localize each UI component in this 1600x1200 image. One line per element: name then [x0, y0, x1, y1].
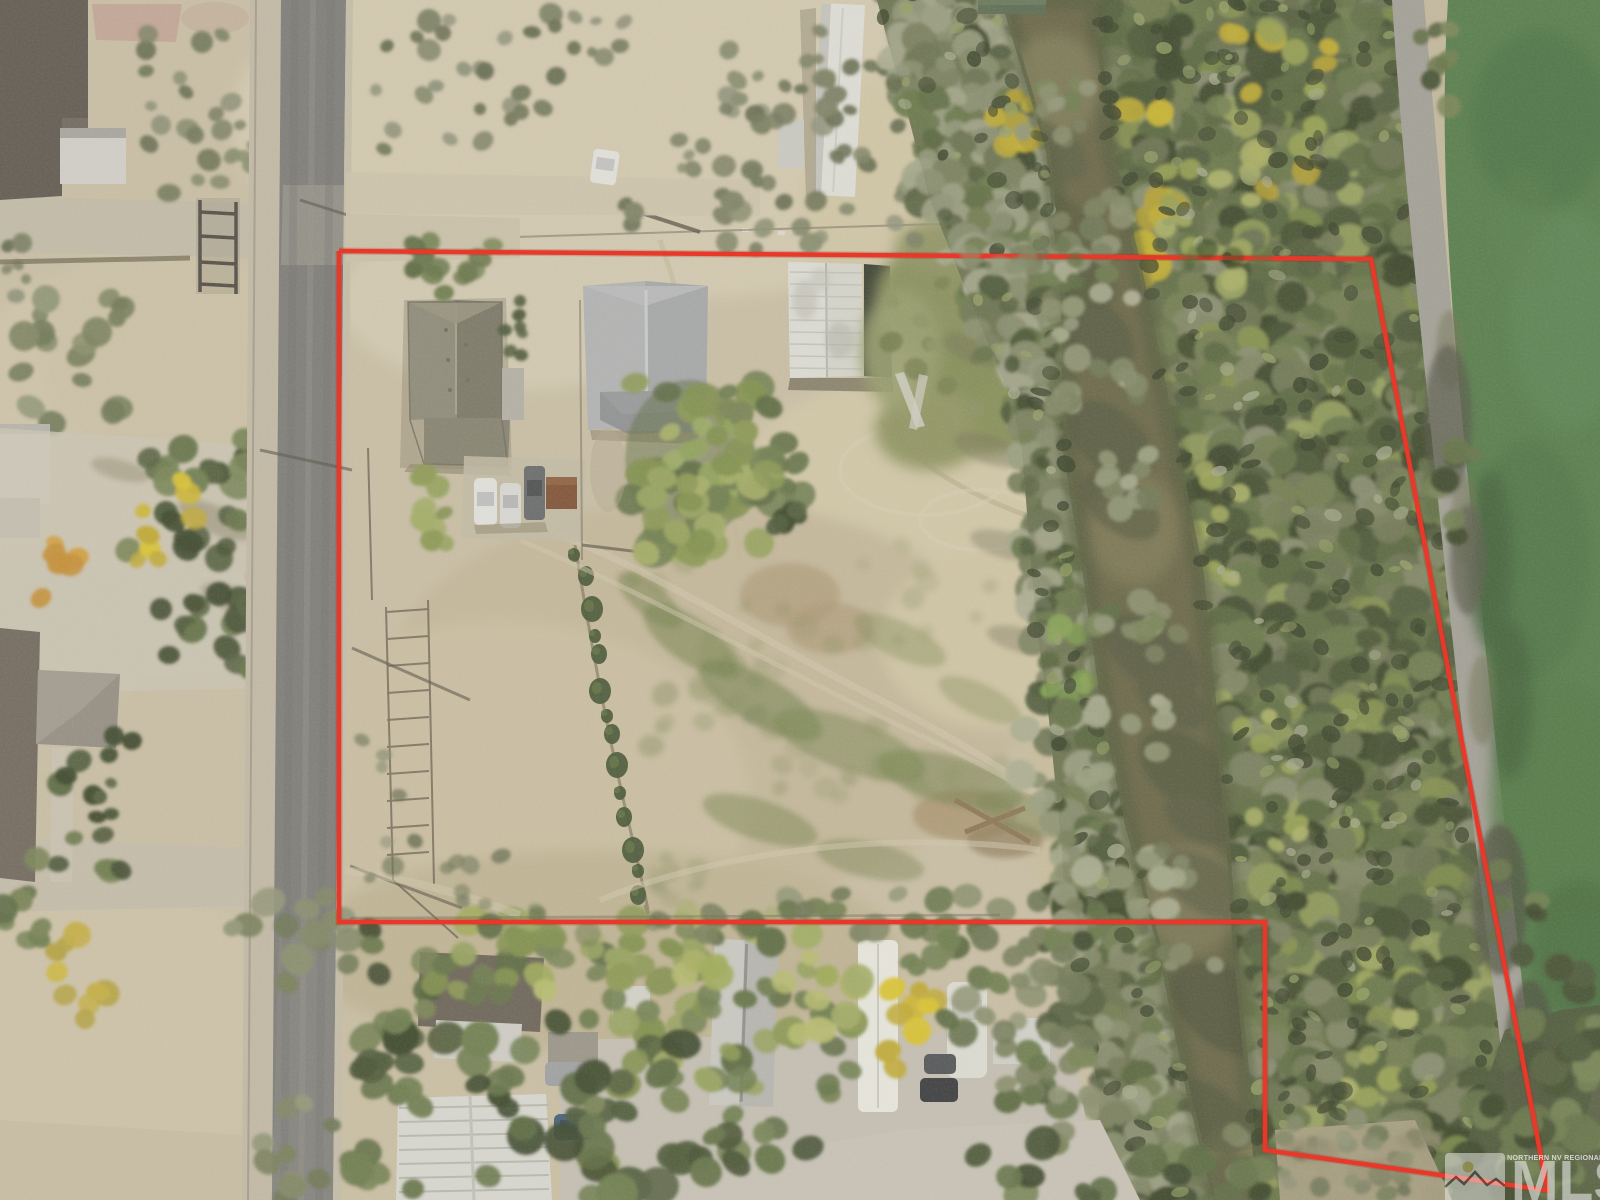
svg-text:MLS: MLS	[1511, 1149, 1600, 1200]
